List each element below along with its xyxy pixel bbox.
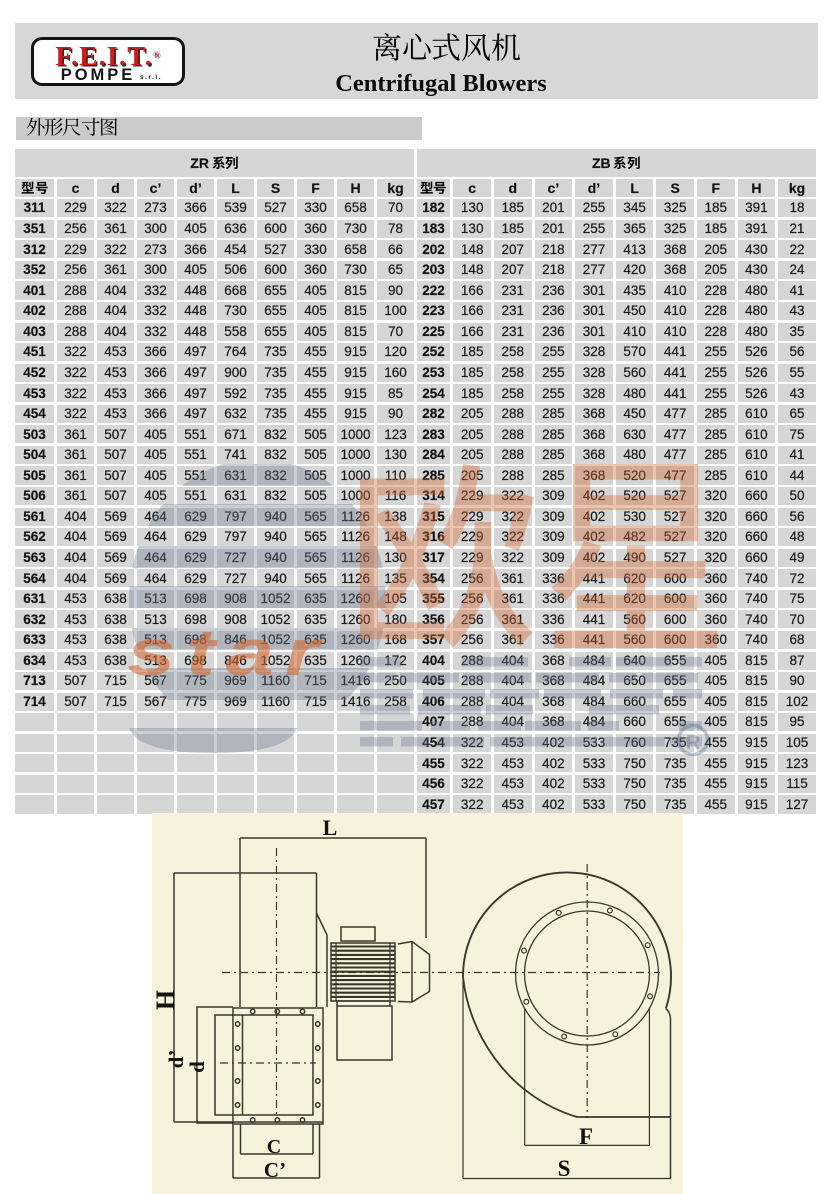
svg-text:C’: C’	[264, 1158, 286, 1182]
svg-text:F: F	[579, 1124, 593, 1149]
svg-text:C: C	[267, 1136, 281, 1158]
svg-text:L: L	[323, 815, 338, 840]
svg-text:S: S	[558, 1156, 571, 1181]
svg-text:H: H	[152, 990, 180, 1010]
svg-text:d: d	[185, 1061, 209, 1073]
